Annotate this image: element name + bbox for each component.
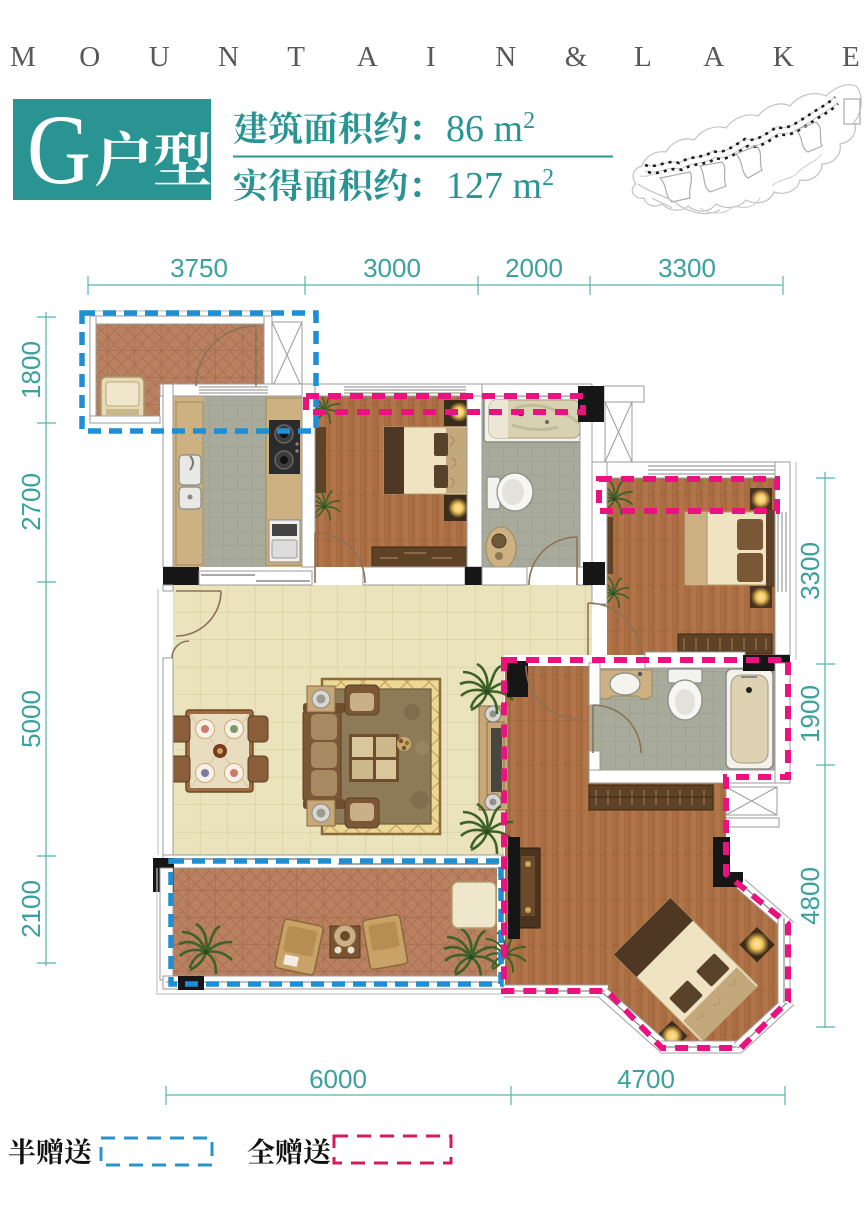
svg-text:86 m2: 86 m2 [446, 108, 535, 150]
svg-text:1900: 1900 [795, 685, 825, 743]
svg-text:K: K [773, 41, 794, 73]
svg-text:6000: 6000 [309, 1064, 367, 1094]
svg-text:3750: 3750 [170, 253, 228, 283]
svg-text:5000: 5000 [16, 690, 46, 748]
svg-text:2700: 2700 [16, 473, 46, 531]
svg-text:2000: 2000 [505, 253, 563, 283]
svg-text:1800: 1800 [16, 341, 46, 399]
svg-text:N: N [218, 41, 239, 73]
svg-text:I: I [426, 41, 436, 73]
svg-text:A: A [357, 41, 378, 73]
svg-text:A: A [703, 41, 724, 73]
svg-text:4800: 4800 [795, 867, 825, 925]
svg-text:M: M [10, 41, 36, 73]
svg-text:127 m2: 127 m2 [446, 165, 554, 207]
svg-text:T: T [287, 41, 305, 73]
svg-text:3300: 3300 [795, 542, 825, 600]
svg-text:G: G [27, 94, 91, 205]
svg-text:O: O [79, 41, 100, 73]
svg-text:3000: 3000 [363, 253, 421, 283]
svg-text:U: U [149, 41, 170, 73]
svg-text:2100: 2100 [16, 880, 46, 938]
svg-text:3300: 3300 [658, 253, 716, 283]
svg-text:&: & [565, 41, 588, 73]
svg-text:N: N [495, 41, 516, 73]
svg-text:L: L [634, 41, 652, 73]
svg-text:E: E [842, 41, 860, 73]
svg-text:4700: 4700 [617, 1064, 675, 1094]
